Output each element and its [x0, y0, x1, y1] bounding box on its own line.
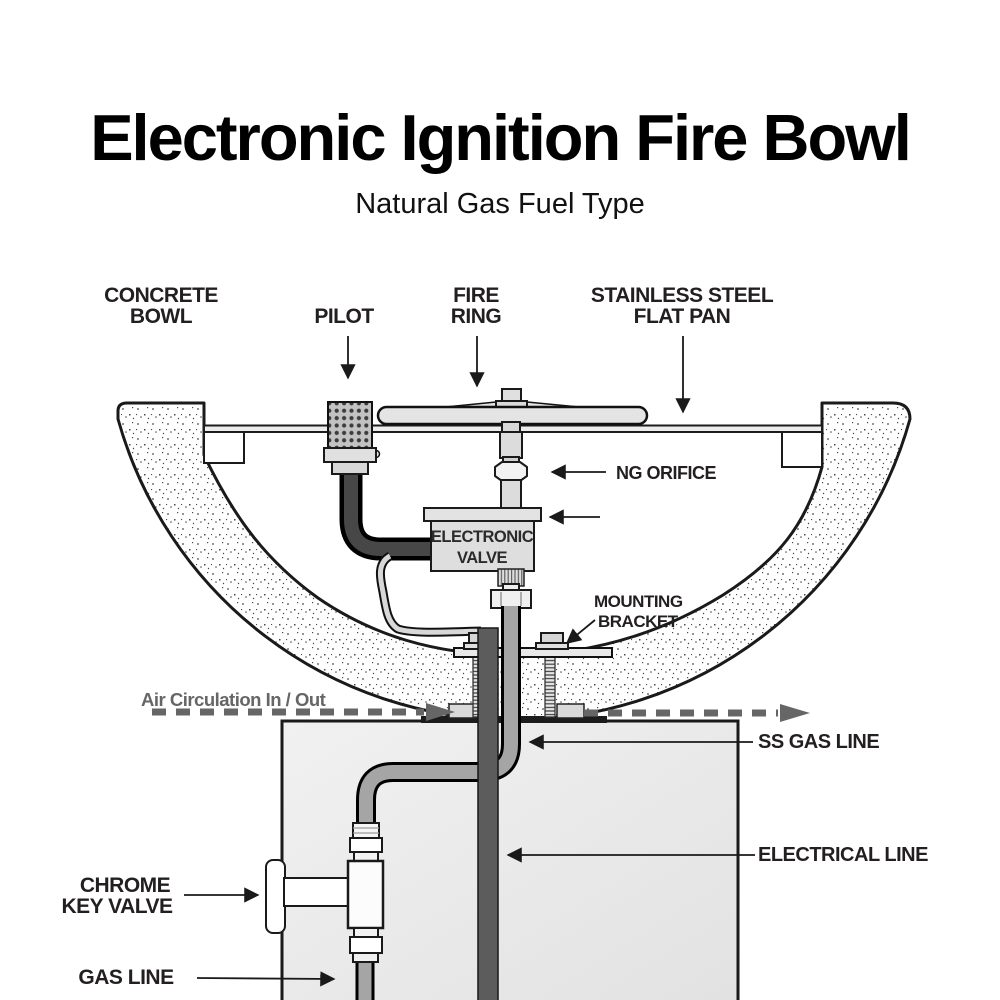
- key-valve-ring-bottom: [354, 928, 378, 937]
- diagram-page: Electronic Ignition Fire Bowl Natural Ga…: [0, 0, 1000, 1000]
- fire-bowl-diagram: ELECTRONIC VALVE: [0, 0, 1000, 1000]
- gas-line-arrow: [197, 978, 334, 979]
- pilot-burner-head: [328, 402, 372, 448]
- bracket-rod-right: [545, 656, 555, 717]
- electronic-valve-top-plate: [424, 508, 541, 521]
- pilot-base-lower: [332, 462, 368, 474]
- label-ss-gas-line: SS GAS LINE: [758, 731, 879, 753]
- bracket-spacer-right: [557, 704, 584, 718]
- pilot-base-upper: [324, 448, 376, 462]
- label-fire-ring-line2: RING: [451, 305, 502, 328]
- pan-support-lip-right: [782, 432, 822, 467]
- label-fire-ring-line1: FIRE: [453, 284, 499, 307]
- label-concrete-bowl-line2: BOWL: [130, 305, 193, 328]
- label-electrical-line: ELECTRICAL LINE: [758, 844, 928, 866]
- air-flow-arrowhead-right: [780, 704, 810, 722]
- label-mounting-bracket-line1: MOUNTING: [594, 592, 683, 611]
- key-valve-ring-top: [354, 852, 378, 861]
- connector-hex-nut: [491, 590, 531, 608]
- electrical-conduit: [478, 628, 498, 1000]
- label-chrome-key-valve-line1: CHROME: [80, 874, 171, 897]
- key-valve-coupling-bottom: [353, 953, 378, 962]
- label-chrome-key-valve-line2: KEY VALVE: [61, 895, 173, 918]
- riser-pipe-upper: [500, 432, 522, 458]
- mounting-bracket-arrow: [567, 620, 595, 643]
- key-valve-hex-top: [350, 838, 382, 852]
- label-ng-orifice: NG ORIFICE: [616, 463, 716, 483]
- label-flat-pan-line1: STAINLESS STEEL: [591, 284, 774, 307]
- pan-support-lip-left: [204, 428, 244, 463]
- key-valve-hex-bottom: [350, 937, 382, 953]
- label-flat-pan-line2: FLAT PAN: [634, 305, 731, 328]
- riser-pipe-lower: [501, 480, 521, 510]
- chrome-key-valve-body: [348, 861, 383, 928]
- label-concrete-bowl-line1: CONCRETE: [104, 284, 218, 307]
- key-valve-flange: [266, 860, 285, 933]
- electronic-valve-label-line2: VALVE: [457, 549, 508, 567]
- label-air-circulation: Air Circulation In / Out: [141, 689, 326, 710]
- ng-orifice-fitting: [495, 462, 527, 481]
- key-valve-side-pipe: [284, 878, 350, 906]
- key-valve-coupling-top: [353, 823, 379, 838]
- label-pilot: PILOT: [314, 305, 374, 328]
- label-gas-line: GAS LINE: [78, 966, 174, 989]
- label-mounting-bracket-line2: BRACKET: [598, 612, 679, 631]
- electronic-valve-label-line1: ELECTRONIC: [431, 528, 534, 546]
- bracket-washer-right: [536, 643, 568, 649]
